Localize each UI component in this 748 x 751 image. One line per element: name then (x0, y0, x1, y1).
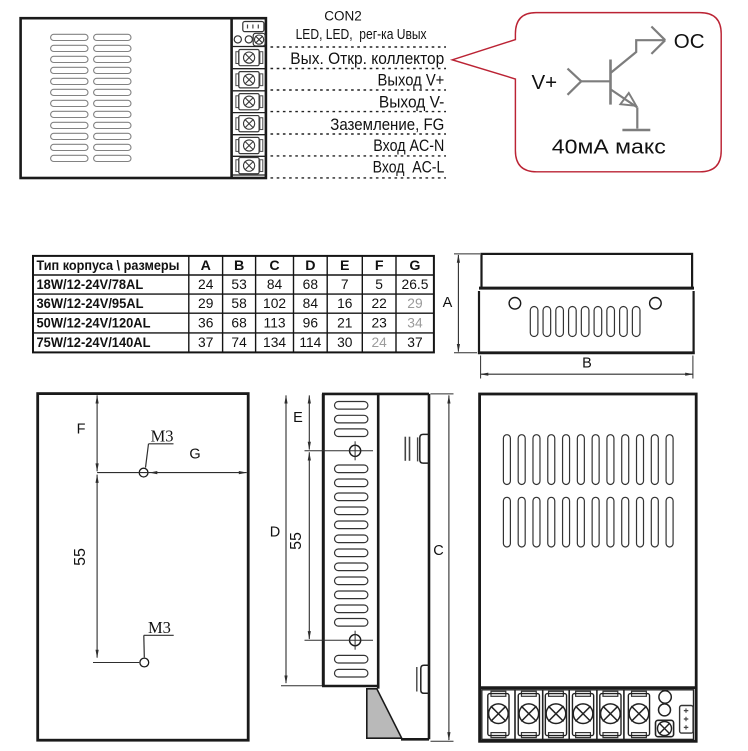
svg-text:Заземление, FG: Заземление, FG (330, 115, 444, 134)
svg-text:18W/12-24V/78AL: 18W/12-24V/78AL (37, 277, 144, 293)
svg-text:CON2: CON2 (324, 9, 362, 24)
svg-text:Выход V+: Выход V+ (378, 71, 445, 90)
svg-text:26.5: 26.5 (402, 277, 429, 292)
svg-text:50W/12-24V/120AL: 50W/12-24V/120AL (37, 315, 151, 331)
svg-text:37: 37 (198, 335, 213, 350)
svg-text:75W/12-24V/140AL: 75W/12-24V/140AL (37, 335, 151, 351)
svg-text:58: 58 (231, 296, 247, 311)
svg-text:G: G (189, 447, 200, 463)
svg-text:21: 21 (337, 315, 352, 330)
svg-text:37: 37 (407, 335, 422, 350)
svg-text:E: E (340, 258, 349, 274)
svg-text:114: 114 (299, 335, 321, 350)
svg-text:Вход AC-L: Вход AC-L (373, 158, 445, 177)
svg-text:74: 74 (231, 335, 247, 350)
svg-text:23: 23 (371, 315, 387, 330)
svg-text:Вход AC-N: Вход AC-N (373, 136, 444, 155)
svg-text:55: 55 (288, 532, 305, 550)
svg-text:A: A (443, 295, 453, 311)
svg-text:M3: M3 (148, 618, 171, 637)
svg-text:55: 55 (72, 548, 89, 566)
svg-text:34: 34 (407, 315, 423, 330)
svg-text:22: 22 (371, 296, 386, 311)
svg-text:7: 7 (341, 277, 349, 292)
svg-text:30: 30 (337, 335, 353, 350)
svg-text:68: 68 (231, 315, 247, 330)
svg-text:29: 29 (407, 296, 423, 311)
svg-text:134: 134 (263, 335, 286, 350)
svg-text:29: 29 (198, 296, 214, 311)
svg-text:16: 16 (337, 296, 353, 311)
svg-text:LED, LED, рег-ка Uвых: LED, LED, рег-ка Uвых (296, 26, 427, 43)
svg-text:D: D (270, 525, 280, 541)
svg-text:24: 24 (198, 277, 214, 292)
svg-text:C: C (269, 258, 279, 274)
svg-text:M3: M3 (151, 427, 174, 446)
svg-text:24: 24 (371, 335, 387, 350)
svg-text:OC: OC (674, 30, 705, 53)
svg-text:5: 5 (375, 277, 383, 292)
svg-text:A: A (201, 258, 211, 274)
svg-text:F: F (375, 258, 384, 274)
svg-text:36: 36 (198, 315, 214, 330)
svg-text:V+: V+ (532, 71, 558, 94)
svg-text:84: 84 (267, 277, 283, 292)
svg-text:Выход V-: Выход V- (379, 93, 444, 112)
svg-text:B: B (234, 258, 244, 274)
svg-text:40мА макс: 40мА макс (552, 135, 666, 158)
svg-text:D: D (305, 258, 315, 274)
svg-text:84: 84 (303, 296, 319, 311)
svg-text:Вых. Откр. коллектор: Вых. Откр. коллектор (290, 49, 444, 68)
svg-text:102: 102 (263, 296, 286, 311)
svg-text:E: E (293, 410, 303, 426)
svg-text:113: 113 (264, 315, 286, 330)
svg-text:53: 53 (231, 277, 247, 292)
svg-text:B: B (582, 355, 592, 371)
svg-text:96: 96 (303, 315, 319, 330)
svg-text:C: C (433, 543, 443, 559)
svg-text:36W/12-24V/95AL: 36W/12-24V/95AL (37, 296, 144, 312)
svg-text:Тип корпуса \ размеры: Тип корпуса \ размеры (37, 258, 180, 274)
svg-text:68: 68 (303, 277, 319, 292)
svg-text:F: F (77, 422, 86, 438)
svg-text:G: G (409, 258, 420, 274)
